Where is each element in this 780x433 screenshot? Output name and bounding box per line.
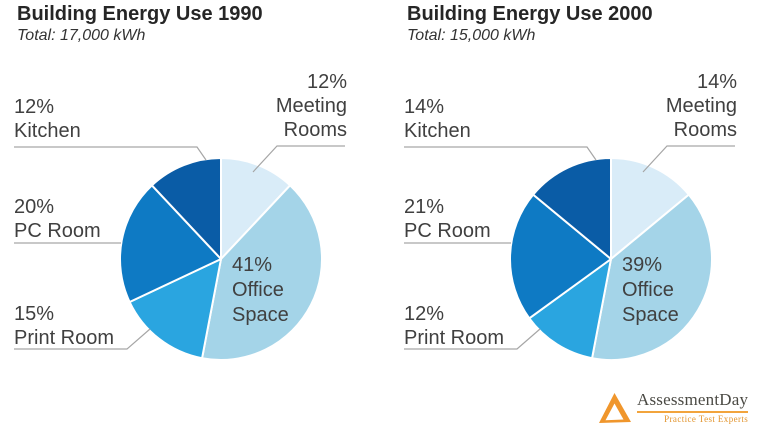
slice-label-office-space-line1: 39% — [622, 254, 662, 276]
assessmentday-logo: AssessmentDay Practice Test Experts — [597, 390, 748, 426]
slice-label-meeting-rooms-line1: 12% — [307, 71, 347, 93]
slice-label-print-room-line1: 12% — [404, 303, 444, 325]
slice-label-print-room-line2: Print Room — [14, 327, 114, 349]
slice-label-pc-room-line2: PC Room — [404, 220, 491, 242]
slice-label-kitchen-line1: 12% — [14, 96, 54, 118]
slice-label-pc-room-line1: 20% — [14, 196, 54, 218]
slice-label-pc-room-line2: PC Room — [14, 220, 101, 242]
logo-tagline: Practice Test Experts — [637, 414, 748, 424]
slice-label-pc-room-line1: 21% — [404, 196, 444, 218]
slice-label-office-space-line2: Office — [622, 279, 674, 301]
logo-triangle-icon — [597, 390, 633, 426]
slice-label-print-room-line2: Print Room — [404, 327, 504, 349]
leader-line-kitchen — [404, 147, 596, 160]
leader-line-kitchen — [14, 147, 206, 160]
pie-chart-2000: Building Energy Use 2000 Total: 15,000 k… — [390, 0, 780, 433]
slice-label-meeting-rooms-line1: 14% — [697, 71, 737, 93]
pie-chart-1990: Building Energy Use 1990 Total: 17,000 k… — [0, 0, 390, 433]
infographic-canvas: Building Energy Use 1990 Total: 17,000 k… — [0, 0, 780, 433]
slice-label-kitchen-line1: 14% — [404, 96, 444, 118]
slice-label-office-space-line1: 41% — [232, 254, 272, 276]
slice-label-meeting-rooms-line2: Meeting — [276, 95, 347, 117]
pie-chart-svg: 14%MeetingRooms39%OfficeSpace12%Print Ro… — [390, 0, 780, 433]
logo-wordmark: AssessmentDay — [637, 390, 748, 413]
slice-label-kitchen-line2: Kitchen — [14, 120, 81, 142]
slice-label-kitchen-line2: Kitchen — [404, 120, 471, 142]
slice-label-meeting-rooms-line3: Rooms — [284, 119, 347, 141]
slice-label-meeting-rooms-line3: Rooms — [674, 119, 737, 141]
slice-label-office-space-line2: Office — [232, 279, 284, 301]
slice-label-office-space-line3: Space — [622, 304, 679, 326]
logo-text-block: AssessmentDay Practice Test Experts — [637, 390, 748, 424]
slice-label-print-room-line1: 15% — [14, 303, 54, 325]
pie-chart-svg: 12%MeetingRooms41%OfficeSpace15%Print Ro… — [0, 0, 390, 433]
slice-label-office-space-line3: Space — [232, 304, 289, 326]
slice-label-meeting-rooms-line2: Meeting — [666, 95, 737, 117]
